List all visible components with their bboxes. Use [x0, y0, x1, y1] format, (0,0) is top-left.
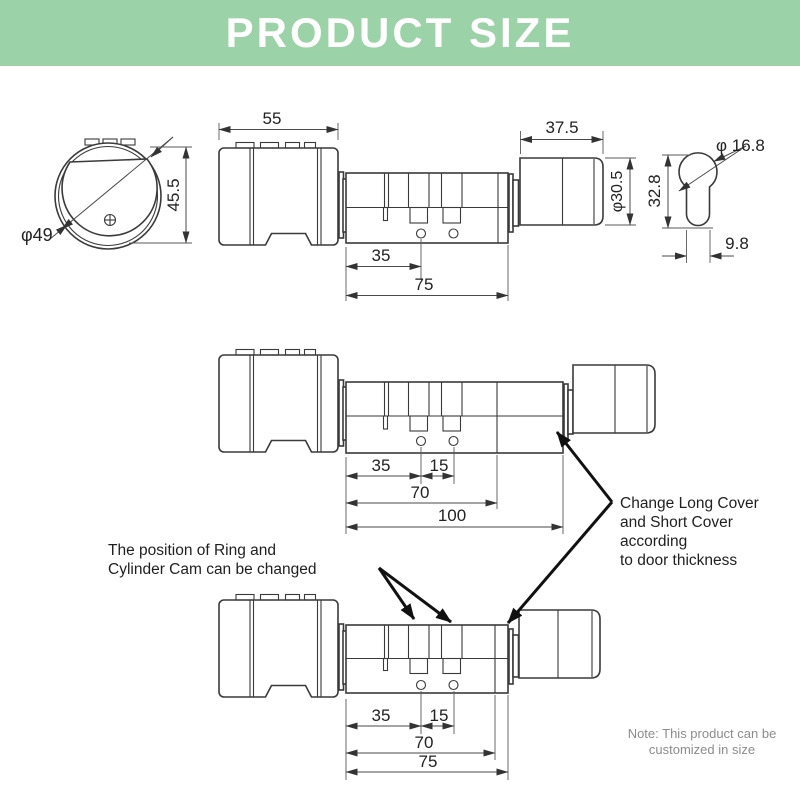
- knob-top-tab: [121, 139, 135, 145]
- dim-100-label: 100: [438, 506, 466, 525]
- long-cover: [573, 365, 655, 433]
- dim-35-label: 35: [372, 246, 391, 265]
- bottom-side-view: 35 15 70 75: [219, 595, 600, 781]
- front-height-label: 45.5: [164, 178, 183, 211]
- profile-height-label: 32.8: [645, 174, 664, 207]
- cover-change-arrow: [557, 432, 612, 502]
- cylinder-body: [346, 382, 563, 453]
- profile-diameter-label: φ 16.8: [716, 136, 765, 155]
- knob-side-view: [219, 143, 338, 246]
- cover-change-arrow: [508, 502, 612, 623]
- middle-side-view: 35 15 70 100: [219, 350, 655, 535]
- front-diameter-label: φ49: [21, 225, 53, 245]
- product-size-page: PRODUCT SIZE: [0, 0, 800, 800]
- cover-diameter-label: φ30.5: [609, 171, 626, 213]
- cylinder-profile: [679, 153, 717, 226]
- annotation-ring-cam: The position of Ring and Cylinder Cam ca…: [108, 541, 317, 579]
- dim-35-label: 35: [372, 706, 391, 725]
- screw-icon: [105, 215, 116, 226]
- dim-15-label: 15: [430, 456, 449, 475]
- technical-drawing: φ49 45.5: [0, 0, 800, 800]
- front-view: φ49 45.5: [21, 137, 192, 249]
- dim-70-label: 70: [411, 483, 430, 502]
- key-profile-view: φ 16.8 32.8 9.8: [645, 136, 765, 263]
- dim-70-label: 70: [415, 733, 434, 752]
- top-side-view: 55 35 75 37.5 φ30.5: [219, 109, 636, 301]
- dim-75-label: 75: [415, 275, 434, 294]
- ring-cam-arrow: [379, 568, 414, 619]
- dim-35-label: 35: [372, 456, 391, 475]
- cover-width-label: 37.5: [545, 118, 578, 137]
- profile-width-label: 9.8: [725, 234, 749, 253]
- ring-cam-arrow: [379, 568, 451, 622]
- short-cover: [520, 158, 603, 225]
- annotation-note: Note: This product can be customized in …: [616, 726, 788, 757]
- short-cover: [519, 610, 600, 678]
- dim-15-label: 15: [430, 706, 449, 725]
- annotation-cover-change: Change Long Cover and Short Cover accord…: [620, 494, 759, 570]
- knob-width-label: 55: [263, 109, 282, 128]
- knob-side-view: [219, 595, 338, 698]
- knob-side-view: [219, 350, 338, 453]
- dim-75-label: 75: [419, 752, 438, 771]
